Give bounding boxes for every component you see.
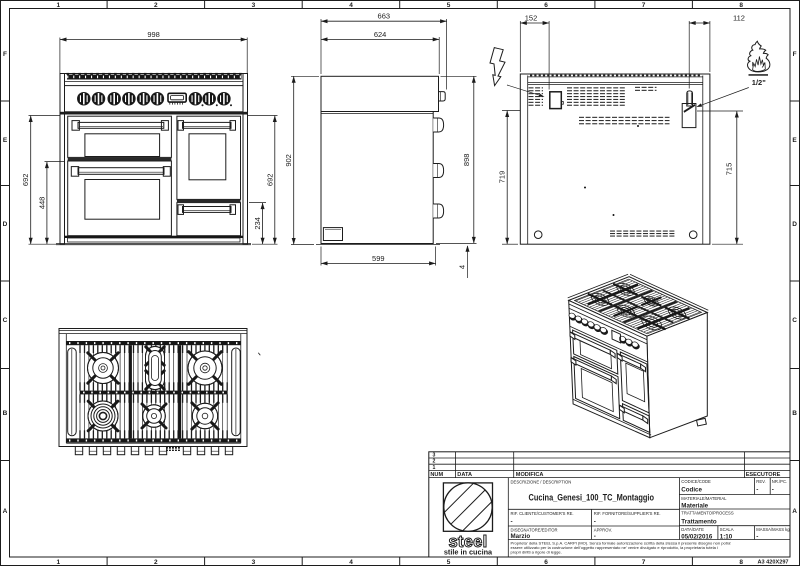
- svg-text:4: 4: [349, 2, 353, 9]
- svg-text:MASSA/MASS kg: MASSA/MASS kg: [756, 527, 790, 532]
- svg-text:715: 715: [725, 163, 734, 176]
- svg-text:C: C: [792, 317, 797, 324]
- svg-text:D: D: [3, 221, 8, 228]
- svg-text:4: 4: [458, 265, 467, 269]
- svg-text:DISEGNATORE/EDITOR: DISEGNATORE/EDITOR: [511, 527, 558, 532]
- svg-text:MODIFICA: MODIFICA: [516, 472, 544, 478]
- svg-text:8: 8: [739, 559, 743, 566]
- svg-text:Codice: Codice: [681, 487, 702, 494]
- svg-text:SCALA: SCALA: [720, 527, 734, 532]
- svg-text:-: -: [594, 519, 596, 526]
- svg-text:112: 112: [733, 14, 745, 23]
- svg-text:NR./PC.: NR./PC.: [772, 479, 787, 484]
- svg-text:663: 663: [378, 12, 391, 21]
- svg-text:ESECUTORE: ESECUTORE: [746, 472, 781, 478]
- svg-text:1: 1: [433, 465, 436, 471]
- svg-text:NUM: NUM: [430, 472, 443, 478]
- svg-text:E: E: [3, 137, 8, 144]
- svg-text:6: 6: [544, 559, 548, 566]
- svg-text:-: -: [511, 519, 513, 526]
- svg-text:898: 898: [462, 154, 471, 167]
- svg-text:692: 692: [265, 174, 274, 187]
- svg-text:998: 998: [147, 30, 160, 39]
- svg-text:2: 2: [433, 459, 436, 465]
- svg-text:B: B: [3, 410, 8, 417]
- svg-text:7: 7: [642, 2, 646, 9]
- svg-text:D: D: [792, 221, 797, 228]
- svg-text:692: 692: [21, 174, 30, 187]
- svg-text:DESCRIZIONE / DESCRIPTION: DESCRIZIONE / DESCRIPTION: [511, 479, 572, 484]
- svg-text:-: -: [756, 533, 758, 540]
- svg-text:DATA: DATA: [457, 472, 472, 478]
- svg-text:6: 6: [544, 2, 548, 9]
- svg-text:8: 8: [739, 2, 743, 9]
- svg-text:B: B: [792, 410, 797, 417]
- svg-text:C: C: [3, 317, 8, 324]
- svg-text:3: 3: [433, 453, 436, 459]
- svg-text:stile in cucina: stile in cucina: [444, 548, 493, 557]
- svg-text:234: 234: [253, 217, 262, 230]
- svg-text:-: -: [594, 533, 596, 540]
- svg-text:A3 420X297: A3 420X297: [757, 560, 788, 566]
- svg-text:F: F: [3, 51, 7, 58]
- svg-text:Marzio: Marzio: [511, 533, 531, 540]
- svg-text:2: 2: [154, 559, 158, 566]
- svg-text:APPROV.: APPROV.: [594, 527, 612, 532]
- svg-text:A: A: [3, 508, 8, 515]
- svg-text:1: 1: [56, 559, 60, 566]
- svg-text:REV.: REV.: [756, 479, 765, 484]
- svg-text:3: 3: [252, 2, 256, 9]
- svg-text:5: 5: [447, 559, 451, 566]
- svg-text:4: 4: [349, 559, 353, 566]
- svg-text:1:10: 1:10: [720, 533, 733, 540]
- svg-text:-: -: [772, 487, 774, 494]
- svg-text:1/2": 1/2": [752, 78, 766, 87]
- svg-text:3: 3: [252, 559, 256, 566]
- svg-text:Materiale: Materiale: [681, 502, 708, 509]
- svg-text:7: 7: [642, 559, 646, 566]
- svg-text:2: 2: [154, 2, 158, 9]
- svg-text:DATA/DATE: DATA/DATE: [681, 527, 704, 532]
- svg-text:624: 624: [374, 30, 387, 39]
- svg-text:MATERIALE/MATERIAL: MATERIALE/MATERIAL: [681, 496, 727, 501]
- svg-text:A: A: [792, 508, 797, 515]
- svg-text:-: -: [756, 487, 758, 494]
- svg-text:599: 599: [372, 254, 385, 263]
- svg-text:1: 1: [56, 2, 60, 9]
- svg-text:Cucina_Genesi_100_TC_Montaggio: Cucina_Genesi_100_TC_Montaggio: [529, 493, 655, 503]
- svg-text:F: F: [793, 51, 797, 58]
- svg-text:902: 902: [284, 154, 293, 167]
- svg-text:Trattamento: Trattamento: [681, 518, 717, 525]
- svg-text:05/02/2016: 05/02/2016: [681, 533, 713, 540]
- svg-text:152: 152: [525, 14, 538, 23]
- svg-text:TRATTAMENTO/PROCESS: TRATTAMENTO/PROCESS: [681, 511, 734, 516]
- svg-text:RIF. FORNITORE/SUPPLIER'S RE.: RIF. FORNITORE/SUPPLIER'S RE.: [594, 511, 661, 516]
- svg-text:propri diritti a rigore di leg: propri diritti a rigore di legge.: [511, 550, 562, 555]
- svg-text:E: E: [792, 137, 797, 144]
- svg-text:448: 448: [37, 197, 46, 210]
- svg-text:719: 719: [498, 171, 507, 184]
- svg-text:5: 5: [447, 2, 451, 9]
- svg-text:CODICE/CODE: CODICE/CODE: [681, 479, 711, 484]
- svg-text:RIF. CLIENTE/CUSTOMER'S RE.: RIF. CLIENTE/CUSTOMER'S RE.: [511, 511, 574, 516]
